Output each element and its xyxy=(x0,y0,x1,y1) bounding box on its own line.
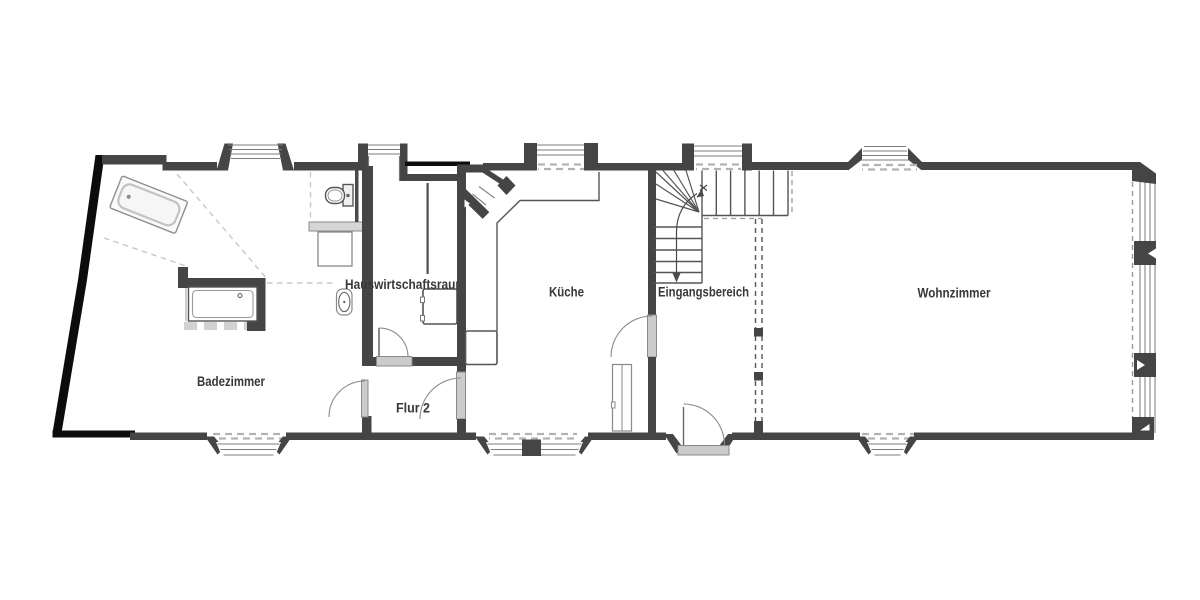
svg-text:Wohnzimmer: Wohnzimmer xyxy=(918,286,992,301)
svg-text:Hauswirtschaftsraum: Hauswirtschaftsraum xyxy=(345,277,466,292)
svg-text:Eingangsbereich: Eingangsbereich xyxy=(658,285,749,300)
svg-text:Küche: Küche xyxy=(549,285,584,300)
svg-text:Flur 2: Flur 2 xyxy=(396,401,430,416)
svg-text:Badezimmer: Badezimmer xyxy=(197,374,266,389)
